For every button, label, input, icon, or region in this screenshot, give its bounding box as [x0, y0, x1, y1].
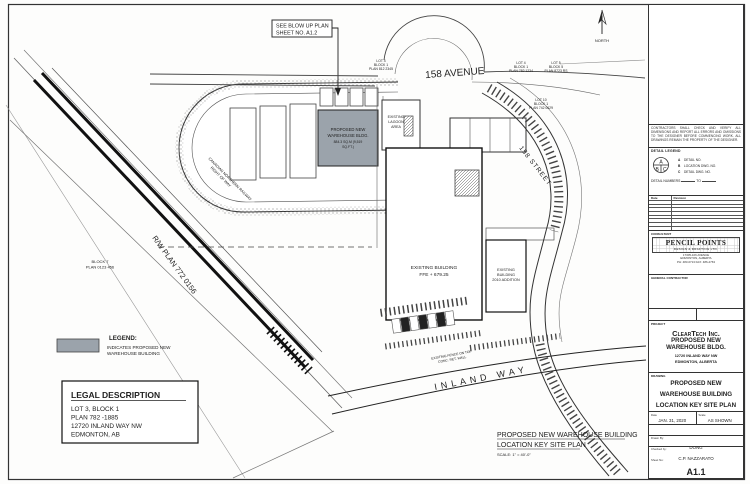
consultant-section: CONSULTANT PENCIL POINTS DESIGN & DRAFTI…	[649, 230, 743, 274]
median-hatch-bottom	[540, 344, 618, 473]
svg-text:LOT 3, BLOCK 1: LOT 3, BLOCK 1	[71, 406, 120, 413]
detail-legend-title: DETAIL LEGEND	[651, 149, 741, 153]
general-contractor-section: GENERAL CONTRACTOR	[649, 274, 743, 309]
drawing-label: DRAWING	[649, 373, 743, 378]
callout-line2: SHEET NO. A1.2	[276, 31, 317, 37]
svg-text:LAGOON: LAGOON	[388, 120, 404, 124]
street-label: 158 STREET	[517, 145, 552, 187]
svg-text:INDICATES PROPOSED NEW: INDICATES PROPOSED NEW	[107, 345, 171, 350]
svg-text:PLAN 782 -1885: PLAN 782 -1885	[71, 415, 119, 422]
site-plan-drawing: PROPOSED NEW WAREHOUSE BLDG. 884.3 SQ.M …	[0, 0, 750, 484]
general-contractor-label: GENERAL CONTRACTOR	[649, 275, 743, 280]
svg-text:PLAN 782 1234: PLAN 782 1234	[509, 69, 533, 73]
existing-lagoon-area: EXISTING LAGOON AREA	[382, 100, 420, 150]
svg-text:WAREHOUSE BUILDING: WAREHOUSE BUILDING	[107, 351, 160, 356]
consultant-label: CONSULTANT	[649, 231, 743, 236]
scale-cell: Scale AS SHOWN	[696, 412, 744, 424]
svg-text:PROPOSED NEW WAREHOUSE BUILDIN: PROPOSED NEW WAREHOUSE BUILDING	[497, 432, 638, 439]
legend-swatch	[57, 339, 99, 352]
lot-label-d: LOT 10 BLOCK 1 PLAN 742 0629	[529, 98, 553, 110]
svg-text:PLAN 742 0629: PLAN 742 0629	[529, 106, 553, 110]
svg-text:2010 ADDITION: 2010 ADDITION	[492, 278, 520, 282]
detail-marker-icon: A B C	[651, 155, 675, 175]
drawn-by-row: Drawn By: DONG	[649, 424, 743, 435]
svg-text:EXISTING: EXISTING	[497, 268, 515, 272]
legend: LEGEND: INDICATES PROPOSED NEW WAREHOUSE…	[57, 335, 171, 356]
project-section: PROJECT ClearTech Inc. PROPOSED NEW WARE…	[649, 320, 743, 372]
legal-description-box: LEGAL DESCRIPTION LOT 3, BLOCK 1 PLAN 78…	[62, 381, 198, 443]
callout-line1: SEE BLOW UP PLAN	[276, 24, 329, 30]
lot-label-b: LOT 4 BLOCK 1 PLAN 782 1234	[509, 61, 533, 73]
empty-split-row	[649, 308, 743, 320]
plan-title: PROPOSED NEW WAREHOUSE BUILDING LOCATION…	[497, 432, 638, 457]
north-label: NORTH	[595, 38, 609, 43]
rw-plan-label: R/W PLAN 772 0156	[150, 234, 198, 296]
lot-label-c: LOT 5 BLOCK 5 PLAN 8723 RS	[545, 61, 569, 73]
stair-hatch	[455, 170, 479, 196]
lot-label-a: LOT 4 BLOCK 1 PLAN 812 2345	[369, 59, 393, 71]
svg-text:12720 INLAND WAY NW: 12720 INLAND WAY NW	[71, 423, 143, 430]
svg-text:EDMONTON, AB: EDMONTON, AB	[71, 432, 120, 439]
svg-text:SQ.FT.): SQ.FT.)	[342, 145, 354, 149]
inland-way-label: INLAND WAY	[433, 364, 528, 392]
svg-text:AREA: AREA	[391, 125, 401, 129]
plan-scale: SCALE: 1" = 40'-0"	[497, 452, 531, 457]
svg-text:C: C	[663, 167, 667, 173]
site-plan-sheet: PROPOSED NEW WAREHOUSE BLDG. 884.3 SQ.M …	[0, 0, 750, 484]
client-name: ClearTech Inc.	[649, 329, 743, 338]
date-scale-row: Date JAN. 31, 2020 Scale AS SHOWN	[649, 411, 743, 424]
svg-text:PLAN 812 2345: PLAN 812 2345	[369, 67, 393, 71]
avenue-label: 158 AVENUE	[425, 66, 485, 81]
proposed-warehouse-building: PROPOSED NEW WAREHOUSE BLDG. 884.3 SQ.M …	[318, 110, 378, 166]
consultant-logo: PENCIL POINTS DESIGN & DRAFTING LTD.	[652, 237, 740, 253]
legal-title: LEGAL DESCRIPTION	[71, 390, 160, 400]
svg-text:PLAN 0123 456: PLAN 0123 456	[86, 265, 115, 270]
block7-label: BLOCK 7	[92, 259, 110, 264]
detail-legend-section: DETAIL LEGEND A B C ADETAIL NO. BLOCATIO…	[649, 147, 743, 195]
north-arrow: NORTH	[595, 10, 609, 43]
consultant-address: 17305-106 AVENUE EDMONTON, ALBERTA PH: 4…	[649, 254, 743, 265]
title-block-panel: CONTRACTORS SHALL CHECK AND VERIFY ALL D…	[648, 4, 744, 479]
detail-legend-items: ADETAIL NO. BLOCATION DWG. NO. CDETAIL D…	[678, 155, 716, 175]
sheet-number-row: Sheet No: A1.1	[649, 446, 743, 478]
panel-empty-space	[649, 5, 743, 124]
revision-table: Date Revision	[649, 195, 743, 230]
legend-title: LEGEND:	[109, 335, 137, 342]
project-label: PROJECT	[649, 321, 743, 326]
svg-text:EXISTING: EXISTING	[388, 115, 405, 119]
sheet-number: A1.1	[651, 467, 741, 477]
existing-building-label: EXISTING BUILDING	[411, 265, 458, 271]
date-cell: Date JAN. 31, 2020	[649, 412, 696, 424]
drawing-title-section: DRAWING PROPOSED NEW WAREHOUSE BUILDING …	[649, 372, 743, 411]
svg-text:BUILDING: BUILDING	[497, 273, 515, 277]
detail-numbers-row: DETAIL NUMBERS TO	[651, 178, 741, 183]
svg-text:FFE + 679.25: FFE + 679.25	[419, 272, 449, 278]
fence-note: EXISTING FENCE ON TOP CONC. RET. WALL	[431, 349, 474, 365]
svg-text:LOCATION KEY SITE PLAN: LOCATION KEY SITE PLAN	[497, 442, 586, 449]
proposed-building-label: PROPOSED NEW	[331, 127, 366, 132]
svg-text:884.3 SQ.M (9,519: 884.3 SQ.M (9,519	[334, 140, 363, 144]
svg-text:WAREHOUSE BLDG.: WAREHOUSE BLDG.	[327, 133, 368, 138]
general-notes: CONTRACTORS SHALL CHECK AND VERIFY ALL D…	[649, 124, 743, 147]
svg-text:PLAN 8723 RS: PLAN 8723 RS	[545, 69, 569, 73]
checked-by-row: Checked by: C.P. NAZZARATO	[649, 435, 743, 446]
